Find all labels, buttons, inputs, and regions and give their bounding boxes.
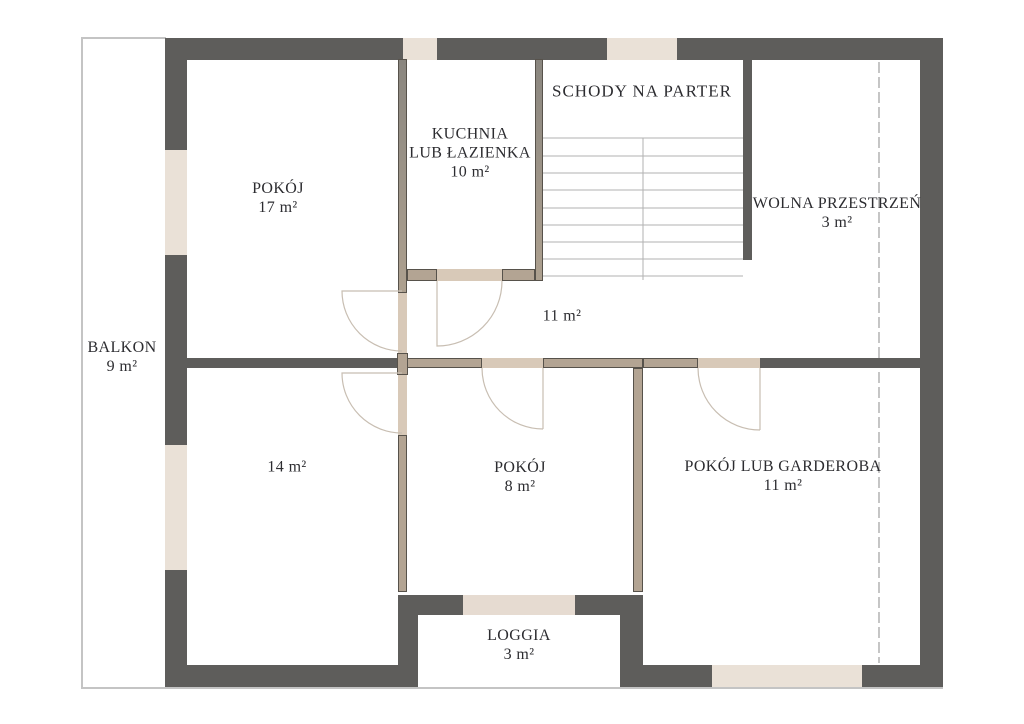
room-area: 10 m² <box>409 163 531 182</box>
window-left-upper <box>165 150 187 255</box>
room-area: 11 m² <box>543 307 582 326</box>
balkon-edge-left <box>81 37 83 689</box>
door-kitchen <box>437 281 502 346</box>
door-pokoj8 <box>482 368 543 429</box>
wall-left-mid <box>165 255 187 445</box>
room-area: 3 m² <box>753 213 922 232</box>
stairs-treads <box>543 138 743 280</box>
wall-pokoj8-bottom-left <box>398 595 463 615</box>
plan-edge-bottom <box>81 687 943 689</box>
room-area: 9 m² <box>87 357 156 376</box>
window-bottom-garderoba <box>712 665 862 687</box>
door-garderoba <box>698 368 760 430</box>
wall-loggia-right <box>620 615 643 687</box>
door-opening-garderoba <box>698 358 760 368</box>
wall-pokoj8-garderoba <box>633 368 643 592</box>
door-pokoj17 <box>342 291 402 351</box>
floor-plan: BALKON 9 m² POKÓJ 17 m² KUCHNIA LUB ŁAZI… <box>0 0 1024 724</box>
room-label-pokoj14: 14 m² <box>267 458 306 477</box>
room-area: 3 m² <box>487 645 551 664</box>
wall-bottom-left <box>165 665 398 687</box>
wall-kitchen-bottom-right <box>502 269 535 281</box>
room-area: 11 m² <box>685 476 882 495</box>
wall-top-right <box>677 38 943 60</box>
wall-pokoj8-bottom-right <box>575 595 643 615</box>
door-pokoj14 <box>342 373 402 433</box>
door-opening-pokoj17 <box>398 293 407 353</box>
room-area: 17 m² <box>252 198 304 217</box>
wall-hall-south-tan3 <box>643 358 698 368</box>
wall-stairs-right <box>743 58 752 260</box>
window-left-lower <box>165 445 187 570</box>
wall-kitchen-left <box>398 59 407 293</box>
window-top-stairs <box>607 38 677 60</box>
balkon-edge-top <box>81 37 166 39</box>
room-area: 14 m² <box>267 458 306 477</box>
wall-mid-vertical <box>398 435 407 592</box>
room-label-hol: 11 m² <box>543 307 582 326</box>
wall-hall-south-tan1 <box>407 358 482 368</box>
room-area: 8 m² <box>494 477 546 496</box>
wall-bottom-garderoba-left <box>643 665 712 687</box>
room-label-balkon: BALKON 9 m² <box>87 338 156 376</box>
room-name: KUCHNIA <box>409 125 531 144</box>
wall-bottom-garderoba-right <box>862 665 943 687</box>
room-name: LUB ŁAZIENKA <box>409 144 531 163</box>
room-name: LOGGIA <box>487 626 551 645</box>
room-label-schody: SCHODY NA PARTER <box>552 82 732 101</box>
room-name: POKÓJ <box>494 458 546 477</box>
room-label-pokoj8: POKÓJ 8 m² <box>494 458 546 496</box>
wall-top-mid <box>437 38 607 60</box>
wall-garderoba-top <box>760 358 920 368</box>
room-label-kuchnia: KUCHNIA LUB ŁAZIENKA 10 m² <box>409 125 531 182</box>
wall-hall-south-dark <box>187 358 397 368</box>
room-label-garderoba: POKÓJ LUB GARDEROBA 11 m² <box>685 457 882 495</box>
wall-right <box>920 38 943 687</box>
room-label-loggia: LOGGIA 3 m² <box>487 626 551 664</box>
door-opening-pokoj14 <box>398 375 407 435</box>
door-opening-kitchen <box>437 269 502 281</box>
door-opening-pokoj8 <box>482 358 543 368</box>
loggia-opening-sill <box>463 595 575 615</box>
room-name: BALKON <box>87 338 156 357</box>
wall-hall-south-tan2 <box>543 358 643 368</box>
wall-loggia-left <box>398 615 418 687</box>
wall-left-upper <box>165 38 187 150</box>
wall-kitchen-bottom-left <box>407 269 437 281</box>
room-name: POKÓJ LUB GARDEROBA <box>685 457 882 476</box>
room-label-pokoj17: POKÓJ 17 m² <box>252 179 304 217</box>
window-top-kitchen <box>403 38 437 60</box>
room-name: POKÓJ <box>252 179 304 198</box>
room-name: SCHODY NA PARTER <box>552 82 732 101</box>
room-name: WOLNA PRZESTRZEŃ <box>753 194 922 213</box>
wall-kitchen-right <box>535 59 543 281</box>
room-label-wolna-przestrzen: WOLNA PRZESTRZEŃ 3 m² <box>753 194 922 232</box>
wall-top-left <box>165 38 403 60</box>
